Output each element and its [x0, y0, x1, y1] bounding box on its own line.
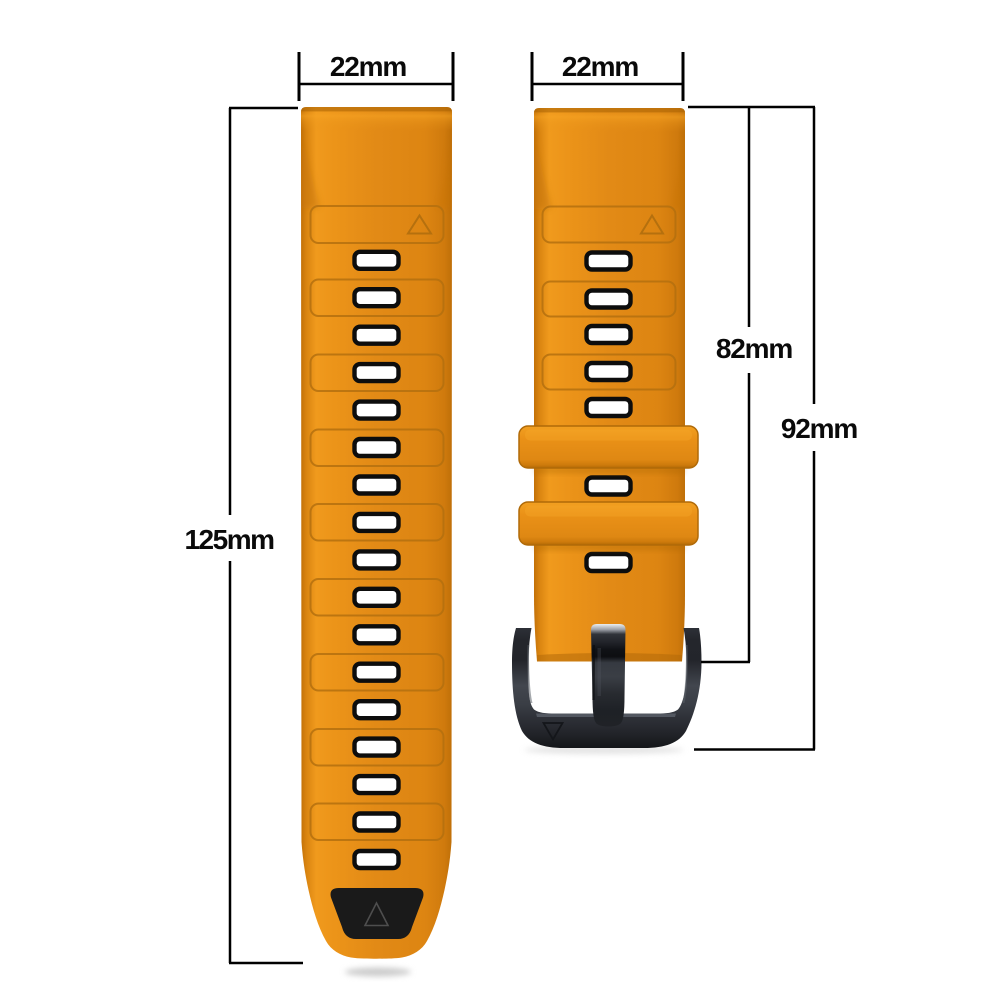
- svg-text:125mm: 125mm: [184, 524, 274, 555]
- svg-text:22mm: 22mm: [562, 51, 638, 82]
- svg-text:22mm: 22mm: [330, 51, 406, 82]
- svg-text:92mm: 92mm: [781, 413, 857, 444]
- svg-text:82mm: 82mm: [716, 333, 792, 364]
